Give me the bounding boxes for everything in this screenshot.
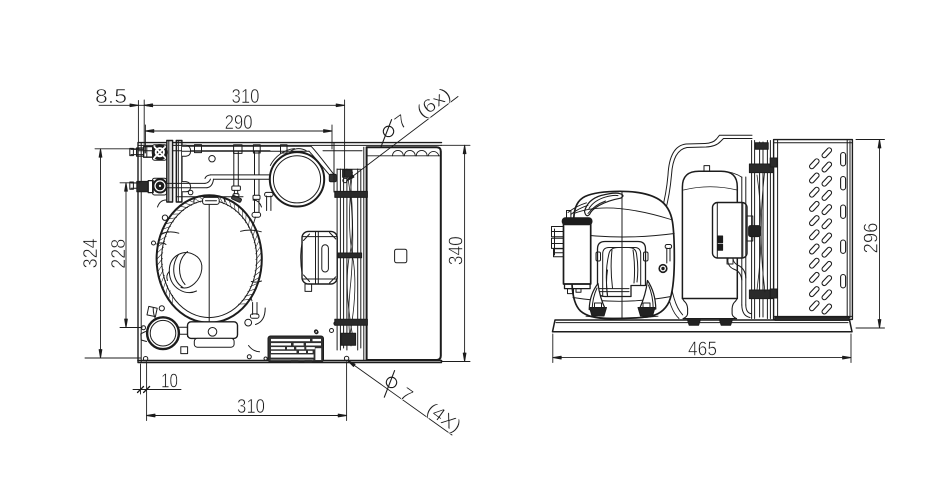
svg-text:310: 310 [232, 86, 260, 108]
svg-text:296: 296 [861, 223, 883, 254]
svg-text:290: 290 [225, 112, 253, 134]
svg-text:10: 10 [161, 371, 178, 393]
svg-text:340: 340 [445, 236, 467, 265]
svg-text:465: 465 [688, 338, 717, 360]
svg-text:310: 310 [237, 396, 265, 418]
svg-text:228: 228 [108, 239, 130, 269]
svg-text:8.5: 8.5 [95, 86, 127, 108]
svg-text:324: 324 [80, 238, 102, 268]
